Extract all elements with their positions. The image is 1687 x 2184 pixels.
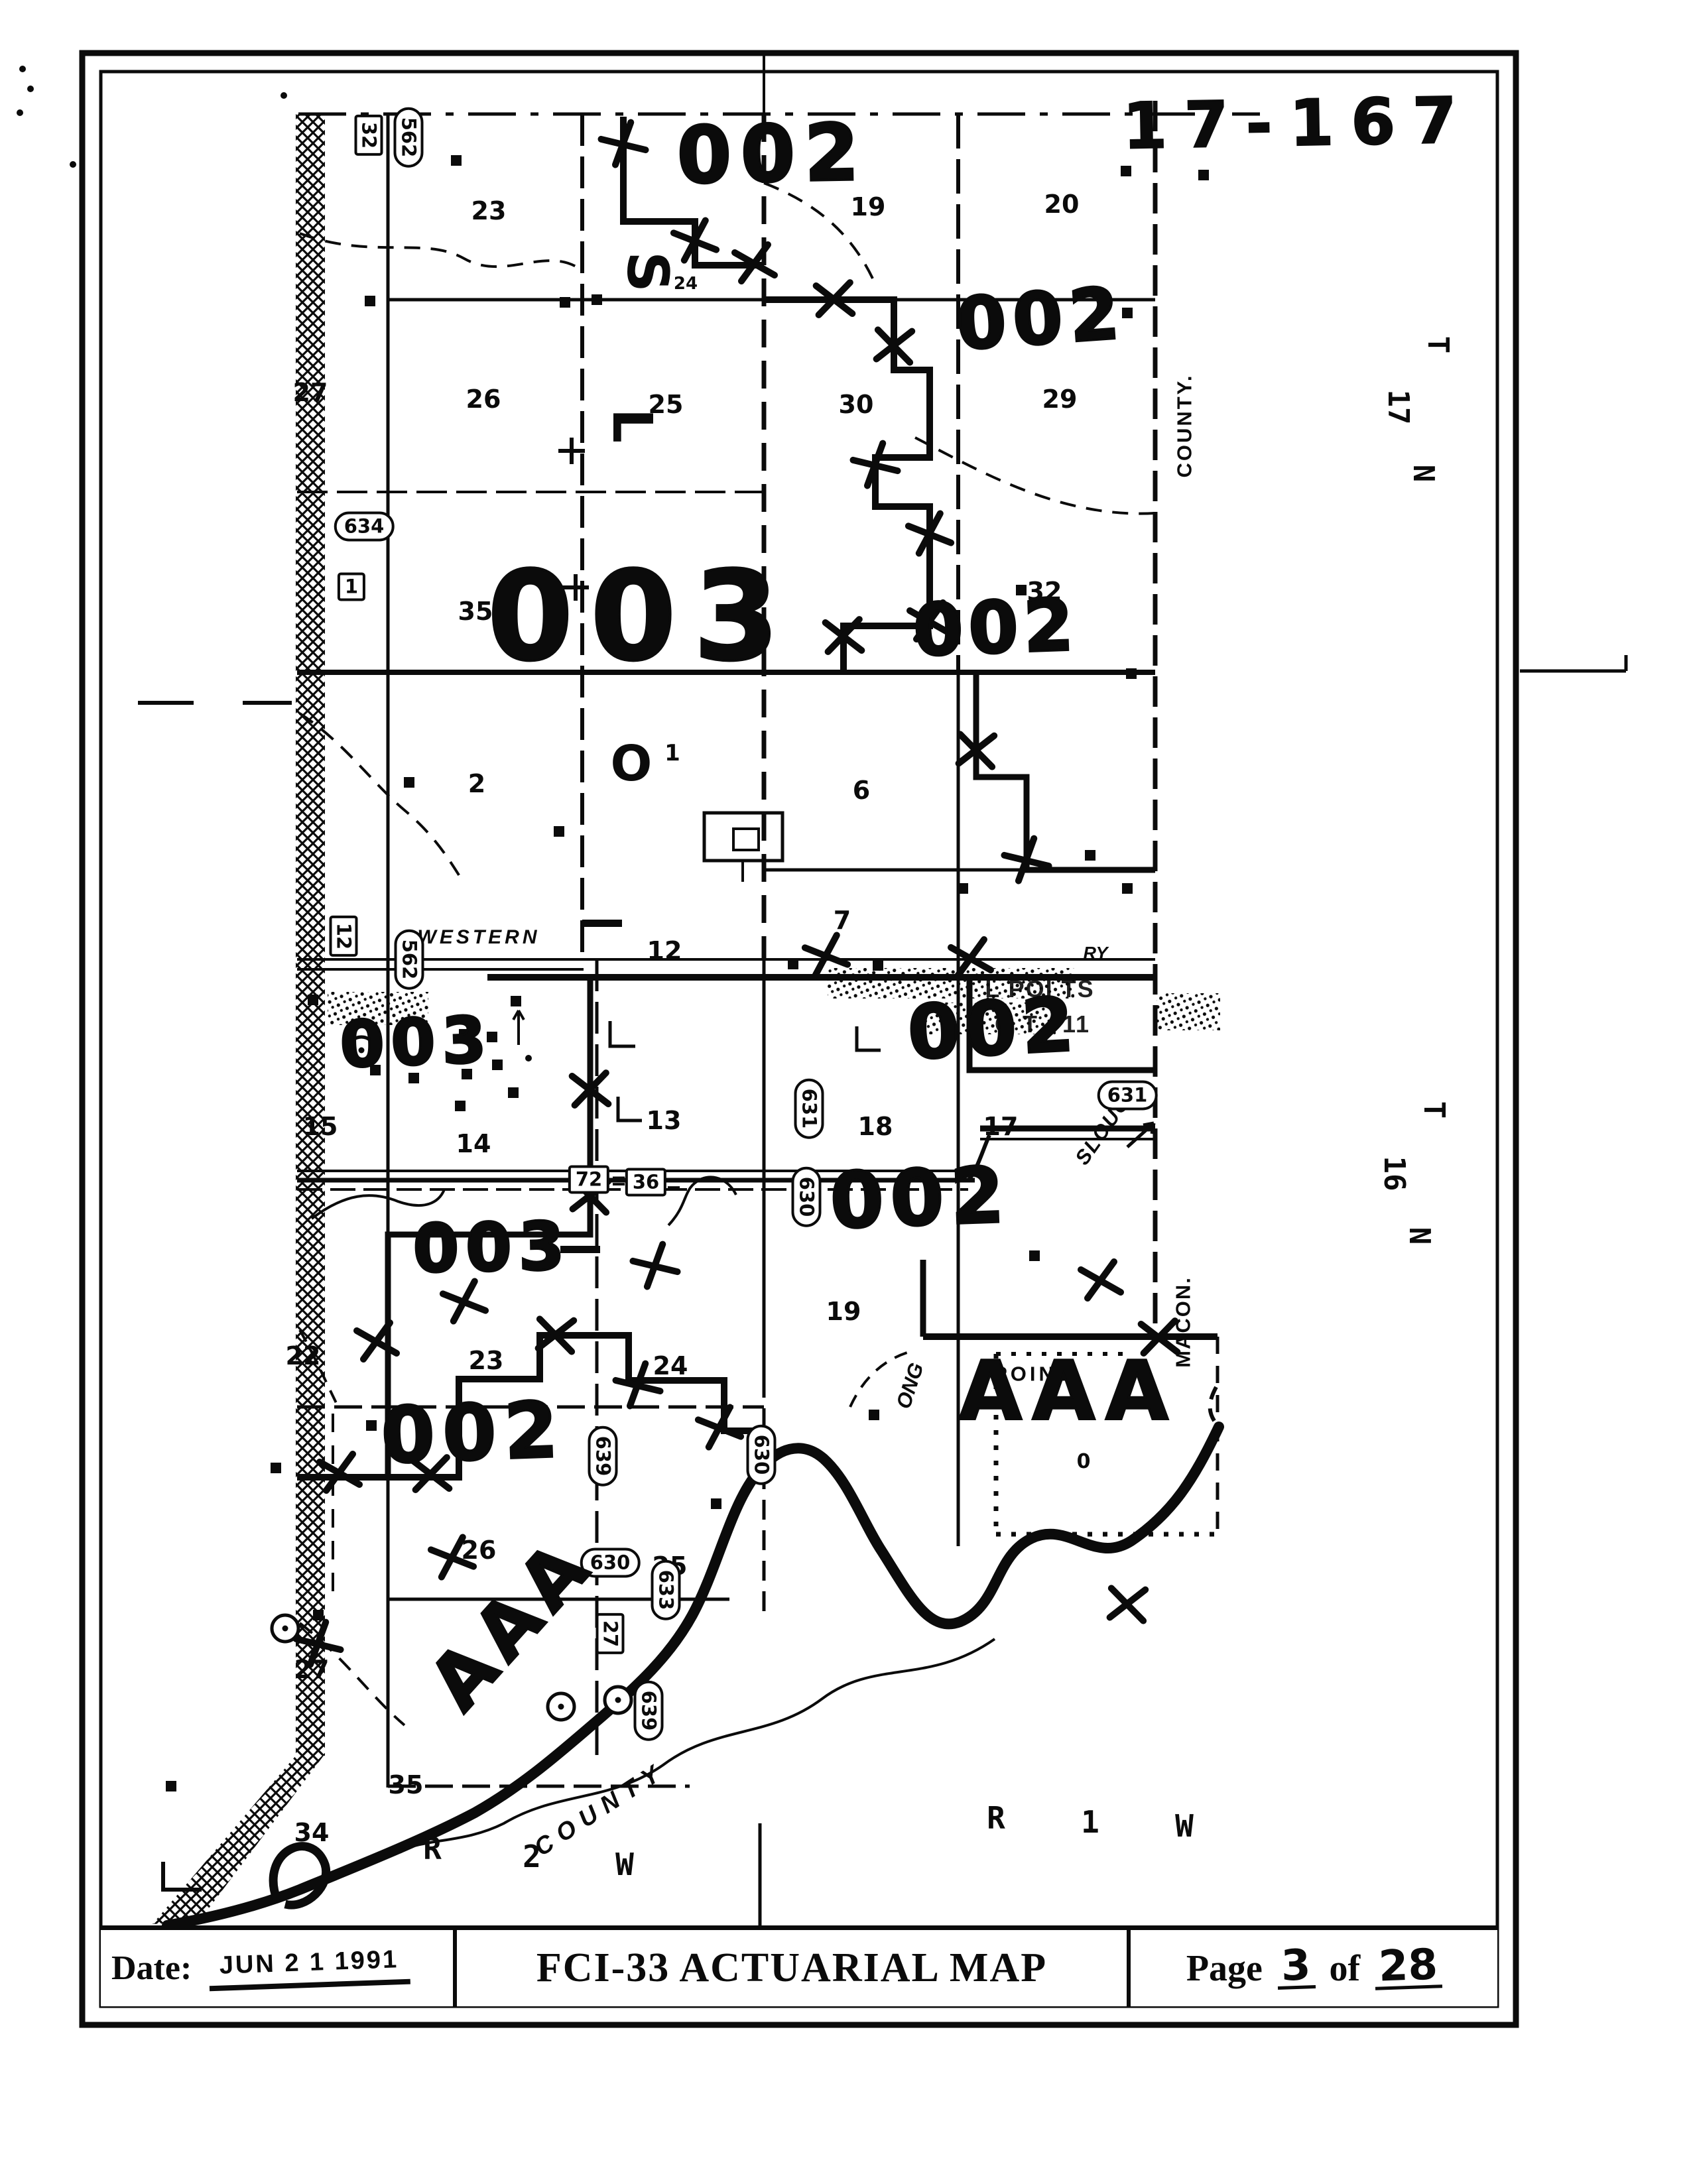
road-label: = [666,1172,680,1196]
route-marker: 639 [634,1681,664,1741]
map-letter: O [611,739,653,788]
section-number: 23 [471,198,507,223]
section-number: 7 [834,908,851,933]
road-label: RY [1083,945,1107,963]
section-number: 34 [294,1820,330,1845]
page-cell: Page 3 of 28 [1131,1930,1497,2006]
road-label: COUNTY. [1174,373,1195,477]
zone-label: AAA [959,1351,1178,1431]
section-number: 30 [839,392,874,417]
zone-label: 002 [912,590,1080,668]
page-total: 28 [1374,1946,1442,1990]
section-number: 27 [293,380,328,405]
page-number: 3 [1277,1947,1316,1990]
title-cell: FCI-33 ACTUARIAL MAP [457,1930,1131,2006]
township-label-char: 16 [1379,1156,1408,1191]
section-number: 22 [286,1343,321,1368]
route-marker: 639 [588,1426,618,1486]
range-label-char: 2 [523,1841,541,1872]
range-label-char: 1 [1081,1807,1099,1837]
section-number: 15 [303,1114,338,1139]
label-layer: 002002003002003002003002AAA002AAA2324192… [0,0,1687,2184]
section-number: 27 [294,1657,330,1682]
map-letter: L [604,408,658,443]
map-title: FCI-33 ACTUARIAL MAP [536,1945,1047,1992]
date-cell: Date: JUN 2 1 1991 [101,1930,457,2006]
section-number: 6 [853,778,870,803]
zone-label: 003 [412,1213,572,1282]
section-number: 23 [469,1348,504,1373]
township-label-char: N [1408,465,1438,483]
road-label: COUNTY [530,1757,670,1860]
section-number: 26 [462,1538,497,1563]
date-label: Date: [111,1949,192,1988]
section-number: 24 [653,1353,688,1378]
road-label: WESTERN [418,928,540,947]
section-number: 20 [1044,192,1080,217]
range-label-char: R [423,1833,442,1864]
route-marker: 36 [625,1168,666,1197]
township-label-char: T [1419,1101,1448,1119]
title-bar: Date: JUN 2 1 1991 FCI-33 ACTUARIAL MAP … [101,1925,1497,2006]
section-number: 35 [389,1772,424,1797]
zone-label: 002 [829,1157,1012,1240]
section-number: 14 [456,1131,491,1156]
section-number: 2 [468,771,485,796]
actuarial-map-page: 002002003002003002003002AAA002AAA2324192… [0,0,1687,2184]
road-label: = [611,1169,625,1193]
range-label-char: W [1175,1811,1194,1841]
section-number: 26 [466,387,501,412]
range-label-char: W [615,1849,634,1880]
route-marker: 631 [794,1079,824,1139]
township-label-char: N [1405,1227,1434,1245]
section-number: 0 [1077,1452,1091,1472]
route-marker: 1 [338,573,365,601]
zone-label: 003 [487,555,796,678]
road-label: ONG [893,1361,926,1412]
zone-label: 002 [906,987,1080,1070]
section-number: 13 [647,1108,682,1133]
township-label-char: 17 [1383,390,1412,425]
zone-label: 002 [676,113,869,194]
route-marker: 72 [568,1166,609,1194]
route-marker: 562 [395,930,424,990]
route-marker: 630 [792,1167,822,1227]
route-marker: 634 [334,512,395,542]
page-label: Page [1186,1947,1263,1990]
section-number: 12 [647,938,682,963]
route-marker: 633 [651,1560,681,1620]
route-marker: 12 [330,916,358,957]
route-marker: 32 [355,115,383,156]
zone-label: 003 [339,1008,494,1077]
range-label-char: R [987,1803,1005,1833]
map-letter: S [619,251,676,292]
date-stamp: JUN 2 1 1991 [208,1945,410,1992]
map-number: 17-167 [1122,83,1475,163]
route-marker: 630 [747,1425,777,1485]
route-marker: 27 [596,1613,625,1654]
zone-label: 002 [380,1392,567,1475]
section-number: 19 [826,1299,861,1324]
section-number: 17 [983,1114,1019,1139]
section-number: 29 [1042,387,1078,412]
of-label: of [1329,1947,1360,1990]
section-number: 18 [858,1114,893,1139]
route-marker: 562 [394,107,424,168]
township-label-char: T [1423,336,1452,354]
zone-label: AAA [417,1524,606,1722]
section-number: 1 [664,742,680,764]
zone-label: 002 [954,278,1128,361]
route-marker: 631 [1097,1081,1158,1111]
